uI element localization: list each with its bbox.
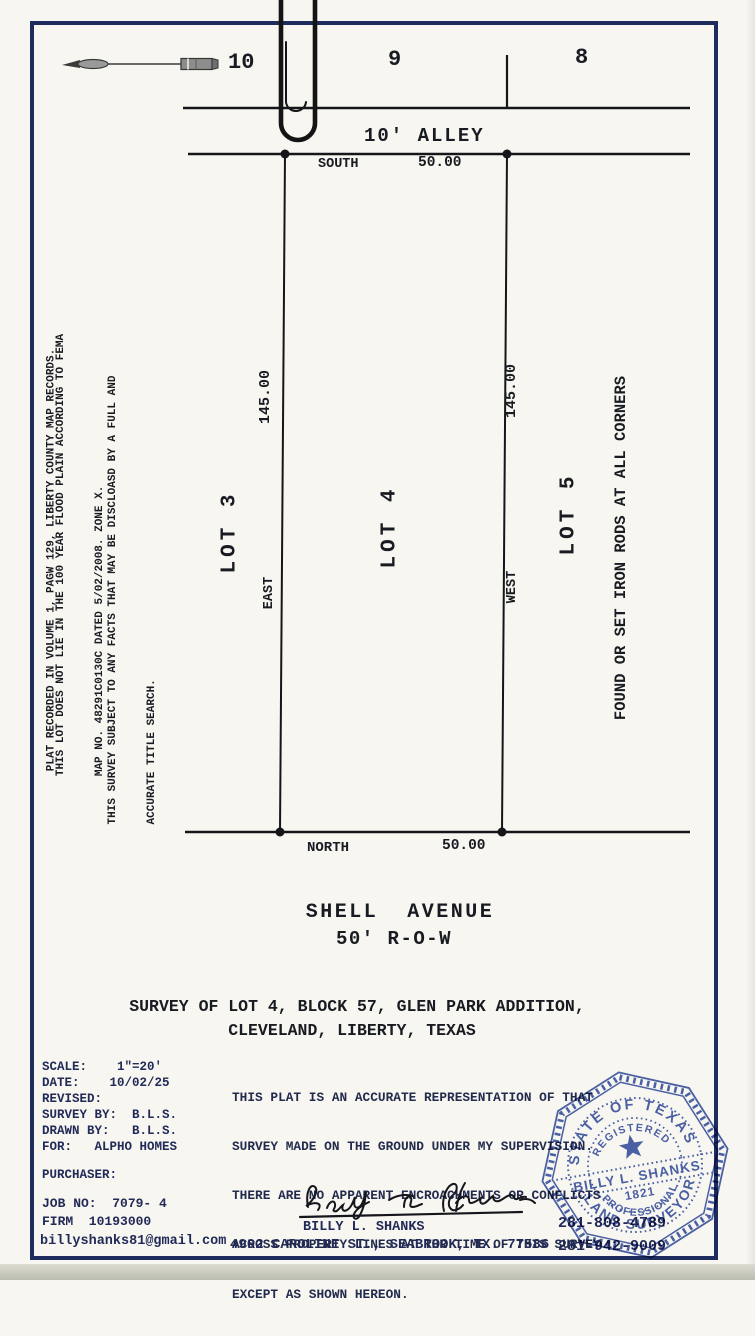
iron-rods-note: FOUND OR SET IRON RODS AT ALL CORNERS: [612, 376, 630, 720]
east-line-dimension: 145.00: [503, 364, 521, 418]
street-name: SHELL AVENUE: [306, 901, 495, 924]
surveyor-typed-name: BILLY L. SHANKS: [303, 1220, 425, 1236]
scan-bottom-edge: [0, 1264, 755, 1280]
surveyor-address: 4902 CAROLINE ST., SEABROOK, TX. 77586: [230, 1237, 549, 1253]
lot4-east-line: [502, 154, 507, 832]
info-firm: FIRM 10193000: [42, 1215, 151, 1230]
lot3-label: LOT 3: [219, 490, 244, 573]
info-revised: REVISED:: [42, 1092, 102, 1106]
south-distance-label: 50.00: [418, 155, 462, 172]
iron-rod-corner-dot: [498, 828, 507, 837]
survey-title-line2: CLEVELAND, LIBERTY, TEXAS: [228, 1022, 476, 1041]
north-distance-label: 50.00: [442, 838, 486, 855]
lot4-label: LOT 4: [379, 485, 404, 568]
west-bearing-label: WEST: [505, 571, 521, 603]
iron-rod-corner-dot: [281, 150, 290, 159]
north-arrow-icon: [62, 59, 218, 70]
iron-rod-corner-dot: [503, 150, 512, 159]
scan-right-edge: [745, 0, 755, 1264]
iron-rod-corner-dot: [276, 828, 285, 837]
north-bearing-label: NORTH: [307, 840, 349, 856]
survey-plat-page: 10 9 8 10' ALLEY SOUTH 50.00 145.00 145.…: [0, 0, 755, 1280]
info-drawn-by: DRAWN BY: B.L.S.: [42, 1124, 177, 1138]
info-survey-by: SURVEY BY: B.L.S.: [42, 1108, 177, 1122]
info-scale: SCALE: 1"=20': [42, 1060, 162, 1074]
surveyor-signature: [292, 1176, 547, 1222]
stamp-chain-border: [533, 1063, 738, 1268]
lot5-label: LOT 5: [558, 472, 583, 555]
info-email: billyshanks81@gmail.com: [40, 1234, 226, 1250]
stamp-outer-octagon: [533, 1063, 738, 1268]
plat-note-3-line1: THIS SURVEY SUBJECT TO ANY FACTS THAT MA…: [107, 376, 120, 825]
certification-line5: EXCEPT AS SHOWN HEREON.: [232, 1287, 601, 1303]
plat-note-3-line2: ACCURATE TITLE SEARCH.: [146, 376, 159, 825]
street-row-label: 50' R-O-W: [336, 929, 452, 951]
block-lot-number-9: 9: [388, 47, 401, 72]
plat-note-3: THIS SURVEY SUBJECT TO ANY FACTS THAT MA…: [81, 376, 185, 825]
east-bearing-label: EAST: [262, 577, 278, 609]
info-date: DATE: 10/02/25: [42, 1076, 170, 1090]
block-lot-number-8: 8: [575, 45, 588, 70]
alley-label: 10' ALLEY: [364, 126, 485, 148]
info-for: FOR: ALPHO HOMES: [42, 1140, 177, 1154]
west-line-dimension: 145.00: [257, 370, 275, 424]
stamp-number-text: 1821: [624, 1184, 657, 1203]
plat-note-2-line1: THIS LOT DOES NOT LIE IN THE 100 YEAR FL…: [55, 334, 68, 776]
surveyor-seal-stamp: STATE OF TEXAS REGISTERED PROFESSIONAL L…: [533, 1063, 738, 1268]
lot4-west-line: [280, 154, 285, 832]
survey-title-line1: SURVEY OF LOT 4, BLOCK 57, GLEN PARK ADD…: [129, 998, 584, 1017]
info-job-no: JOB NO: 7079- 4: [42, 1197, 167, 1212]
block-lot-number-10: 10: [228, 50, 254, 75]
paperclip-icon: [281, 0, 315, 140]
south-bearing-label: SOUTH: [318, 157, 359, 173]
info-purchaser: PURCHASER:: [42, 1168, 117, 1182]
